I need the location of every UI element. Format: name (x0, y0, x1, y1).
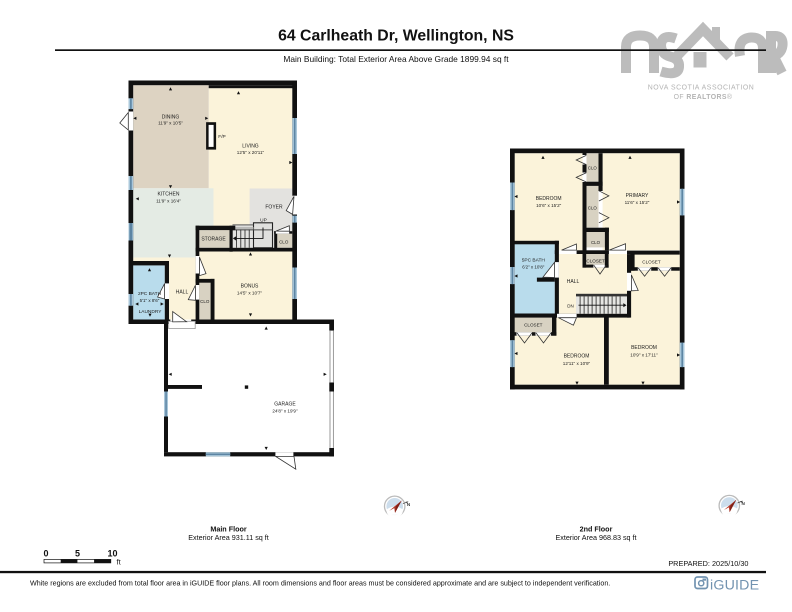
svg-text:64 Carlheath Dr, Wellington, N: 64 Carlheath Dr, Wellington, NS (278, 28, 514, 45)
svg-text:GARAGE: GARAGE (274, 401, 296, 407)
svg-text:BEDROOM: BEDROOM (536, 196, 562, 202)
svg-text:14'5" x 10'7": 14'5" x 10'7" (237, 291, 263, 296)
svg-text:UP: UP (260, 218, 267, 224)
svg-text:PREPARED: 2025/10/30: PREPARED: 2025/10/30 (668, 559, 748, 568)
svg-text:DN: DN (567, 303, 574, 308)
svg-text:11'9" x 10'5": 11'9" x 10'5" (158, 121, 183, 126)
svg-text:11'6" x 15'2": 11'6" x 15'2" (625, 200, 650, 205)
svg-text:White regions are excluded fro: White regions are excluded from total fl… (30, 580, 610, 588)
svg-text:KITCHEN: KITCHEN (158, 191, 180, 197)
svg-text:5: 5 (75, 549, 80, 559)
svg-text:BONUS: BONUS (241, 284, 259, 290)
svg-text:CLOSET: CLOSET (586, 259, 605, 264)
svg-text:5'1" x 8'6": 5'1" x 8'6" (140, 298, 160, 303)
svg-text:11'9" x 16'4": 11'9" x 16'4" (156, 199, 181, 204)
svg-text:HALL: HALL (567, 279, 580, 285)
svg-text:CLO: CLO (591, 240, 601, 245)
svg-text:10'9" x 17'11": 10'9" x 17'11" (630, 353, 658, 358)
svg-text:STORAGE: STORAGE (201, 237, 226, 243)
svg-text:Main Building: Total Exterior: Main Building: Total Exterior Area Above… (283, 54, 509, 64)
svg-text:NOVA SCOTIA ASSOCIATION: NOVA SCOTIA ASSOCIATION (648, 85, 755, 92)
svg-text:Exterior Area 968.83 sq ft: Exterior Area 968.83 sq ft (555, 533, 636, 542)
svg-text:5PC BATH: 5PC BATH (522, 258, 546, 264)
svg-text:DINING: DINING (162, 114, 180, 120)
svg-text:10'6" x 15'2": 10'6" x 15'2" (536, 203, 562, 208)
svg-text:LIVING: LIVING (242, 143, 259, 149)
svg-text:iGUIDE: iGUIDE (710, 578, 759, 594)
svg-text:0: 0 (43, 549, 48, 559)
svg-text:BEDROOM: BEDROOM (564, 353, 590, 359)
svg-text:2PC BATH: 2PC BATH (138, 291, 162, 297)
svg-text:Exterior Area 931.11 sq ft: Exterior Area 931.11 sq ft (188, 533, 269, 542)
svg-text:24'8" x 19'9": 24'8" x 19'9" (272, 408, 298, 413)
svg-text:CLO: CLO (588, 166, 598, 171)
svg-text:CLO: CLO (279, 240, 289, 245)
svg-text:BEDROOM: BEDROOM (631, 345, 657, 351)
svg-text:CLOSET: CLOSET (642, 259, 661, 264)
svg-text:OF REALTORS®: OF REALTORS® (674, 93, 733, 101)
svg-text:6'2" x 10'8": 6'2" x 10'8" (522, 264, 545, 269)
svg-text:CLOSET: CLOSET (524, 323, 543, 328)
svg-text:12'5" x 20'11": 12'5" x 20'11" (237, 150, 265, 155)
svg-text:PRIMARY: PRIMARY (626, 193, 649, 199)
svg-text:F/P: F/P (218, 134, 225, 140)
svg-text:12'11" x 10'9": 12'11" x 10'9" (563, 361, 591, 366)
svg-text:CLO: CLO (200, 299, 210, 304)
svg-text:CLO: CLO (588, 206, 598, 211)
svg-text:HALL: HALL (176, 289, 189, 295)
svg-text:FOYER: FOYER (265, 205, 283, 211)
